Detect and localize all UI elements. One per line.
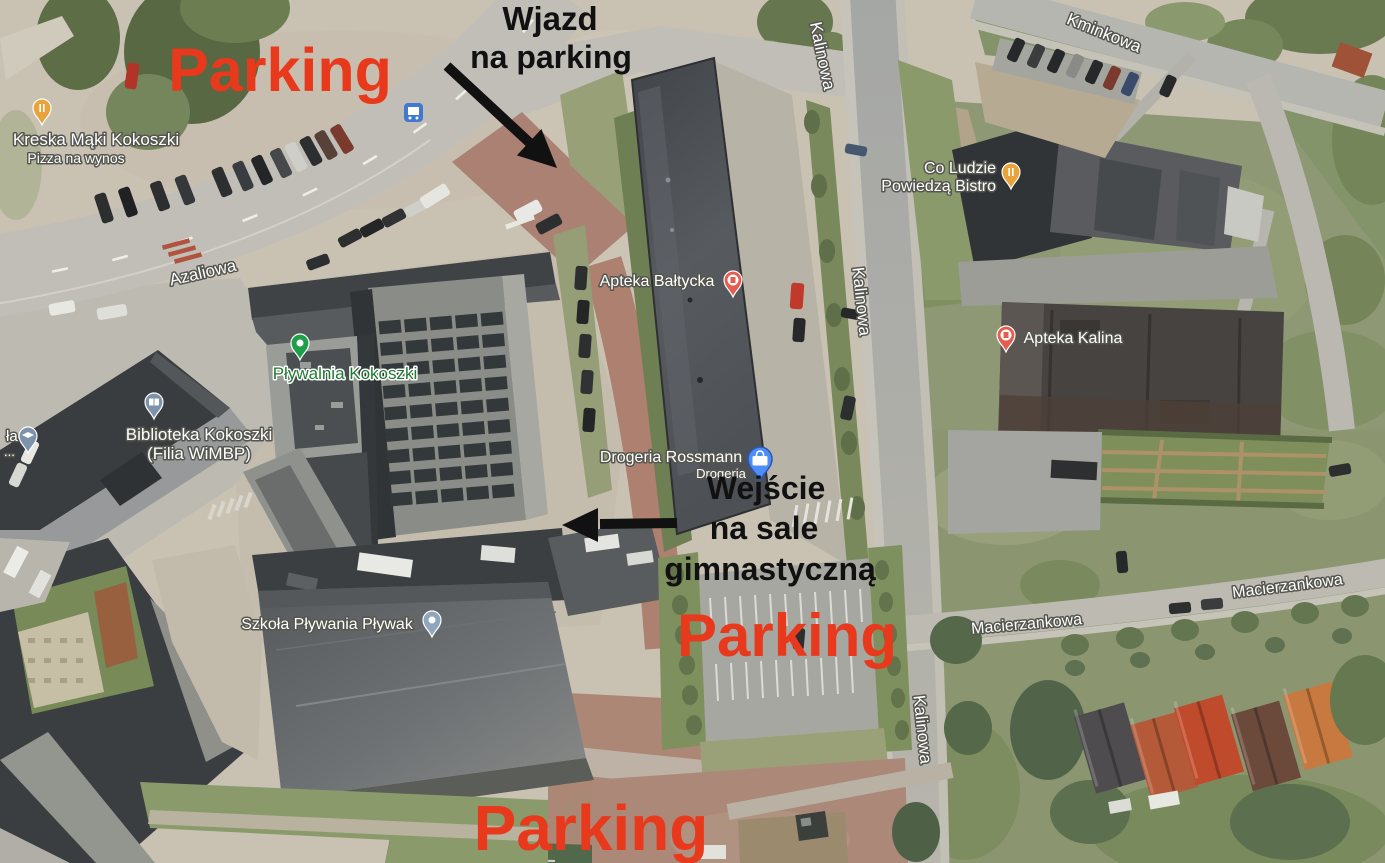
- svg-text:Drogeria Rossmann: Drogeria Rossmann: [600, 449, 742, 466]
- svg-text:Wjazd: Wjazd: [502, 0, 597, 37]
- svg-text:Wejście: Wejście: [707, 470, 826, 506]
- svg-text:Co Ludzie: Co Ludzie: [924, 160, 996, 177]
- svg-text:Parking: Parking: [677, 602, 897, 669]
- svg-text:Powiedzą Bistro: Powiedzą Bistro: [881, 178, 996, 195]
- svg-text:Pizza na wynos: Pizza na wynos: [27, 150, 124, 166]
- svg-text:Pływalnia Kokoszki: Pływalnia Kokoszki: [273, 364, 418, 383]
- svg-text:ła: ła: [6, 428, 18, 445]
- svg-text:Szkoła Pływania Pływak: Szkoła Pływania Pływak: [241, 616, 414, 633]
- svg-text:Biblioteka Kokoszki: Biblioteka Kokoszki: [126, 425, 272, 444]
- svg-text:(Filia WiMBP): (Filia WiMBP): [147, 444, 251, 463]
- svg-text:Parking: Parking: [168, 36, 392, 104]
- svg-text:Kreska Mąki Kokoszki: Kreska Mąki Kokoszki: [13, 130, 179, 149]
- svg-text:gimnastyczną: gimnastyczną: [664, 551, 876, 587]
- svg-text:Apteka Bałtycka: Apteka Bałtycka: [600, 273, 715, 290]
- svg-text:Apteka Kalina: Apteka Kalina: [1024, 330, 1123, 347]
- svg-text:...: ...: [4, 444, 15, 459]
- svg-text:na parking: na parking: [470, 39, 632, 75]
- svg-text:na sale: na sale: [710, 510, 819, 546]
- svg-text:Parking: Parking: [474, 792, 709, 863]
